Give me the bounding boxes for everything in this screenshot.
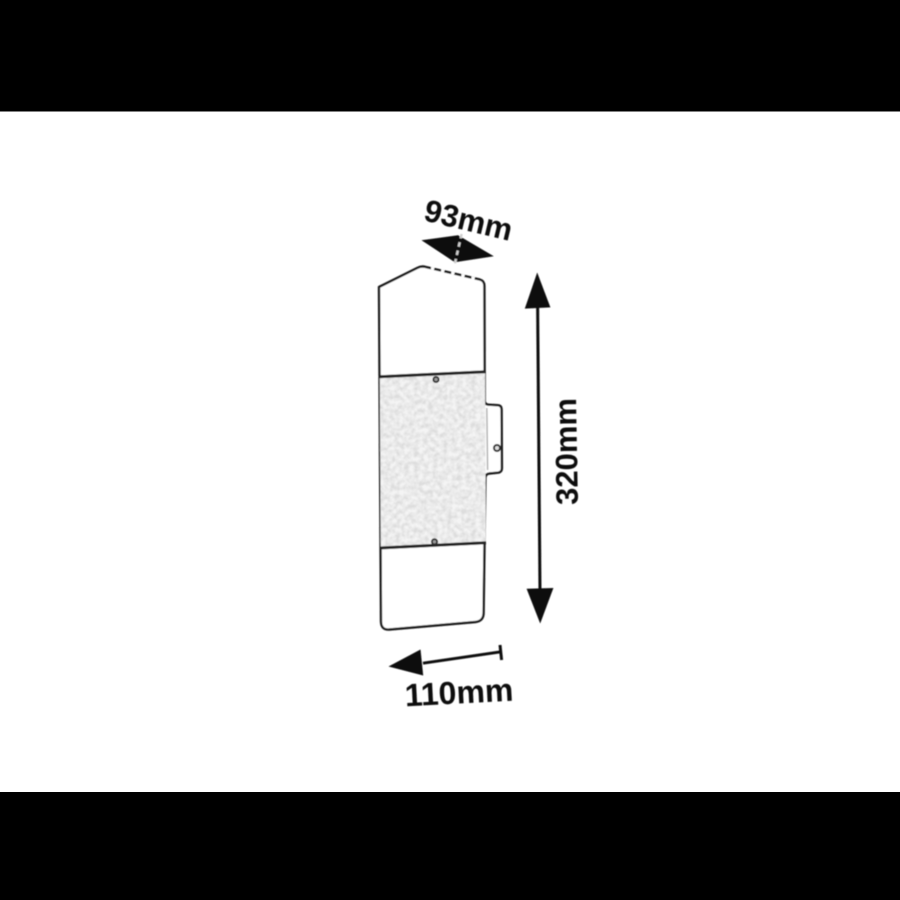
svg-text:320mm: 320mm	[548, 398, 585, 505]
svg-text:110mm: 110mm	[404, 672, 514, 714]
